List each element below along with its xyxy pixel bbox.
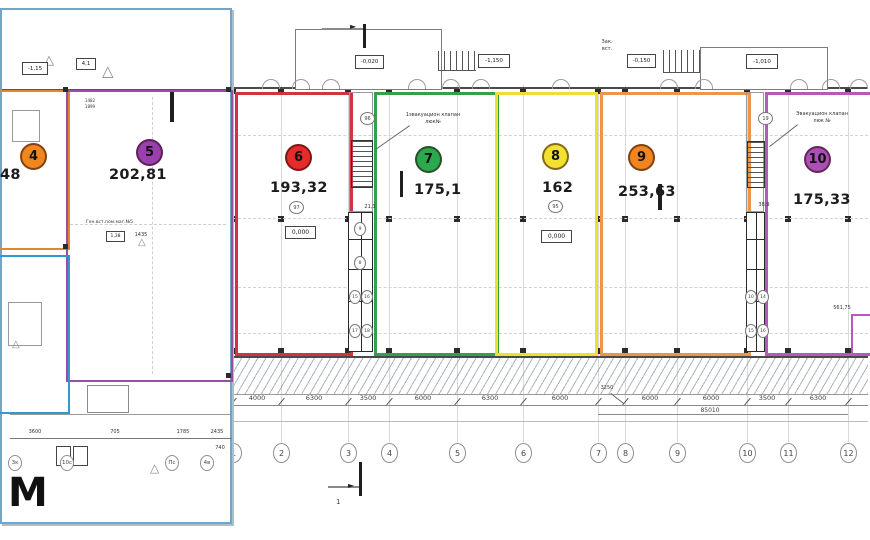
room-outline bbox=[87, 385, 129, 413]
small-label: 1,38 bbox=[106, 231, 125, 242]
unit-5-badge: 5 bbox=[136, 139, 163, 166]
room-tag: 16 bbox=[361, 290, 373, 304]
panel-axis-bubble: 4в bbox=[200, 455, 214, 471]
panel-axis-bubble: 3к bbox=[8, 455, 22, 471]
small-label: 4,1 bbox=[76, 58, 96, 70]
door-arc bbox=[822, 79, 840, 89]
unit-10-badge: 10 bbox=[804, 146, 831, 173]
grid-bubble: 5 bbox=[449, 443, 466, 463]
unit-8-area: 162 bbox=[542, 180, 573, 196]
section-number: 1 bbox=[336, 498, 340, 506]
detail-inset-panel: △ △ △ △ △ -1,15 4,1 1,38 1435 4 48 5 202… bbox=[0, 8, 232, 524]
grid-bubble: 11 bbox=[780, 443, 797, 463]
unit-9-badge: 9 bbox=[628, 144, 655, 171]
unit-7-area: 175,1 bbox=[414, 182, 461, 198]
floor-elevation: 0,000 bbox=[541, 230, 572, 243]
dimension-label: 3250 bbox=[592, 385, 622, 391]
tiny-note: 1482 bbox=[78, 98, 102, 103]
section-marker-top-line bbox=[322, 28, 363, 30]
dimension-label: 6300 bbox=[798, 394, 838, 402]
room-tag: 9 bbox=[354, 222, 366, 236]
section-arrow-icon: ► bbox=[350, 22, 356, 31]
grid-bubble: 2 bbox=[273, 443, 290, 463]
grid-bubble: 4 bbox=[381, 443, 398, 463]
unit-5-note: Ген.вст.пом.маг.№5 bbox=[62, 220, 157, 226]
small-label: -1,15 bbox=[22, 62, 48, 75]
stairs-icon bbox=[747, 141, 765, 188]
partial-unit-region bbox=[851, 314, 870, 356]
panel-line bbox=[10, 414, 230, 415]
unit-9-area: 253,63 bbox=[618, 184, 676, 200]
panel-dim: 740 bbox=[208, 445, 232, 451]
triangle-symbol-icon: △ bbox=[12, 340, 20, 350]
door-arc bbox=[262, 79, 280, 89]
door-arc bbox=[660, 79, 678, 89]
unit-5-area: 202,81 bbox=[109, 167, 167, 183]
unit-6-area: 193,32 bbox=[270, 180, 328, 196]
section-marker-bottom-line bbox=[328, 486, 359, 488]
dimension-label: 6000 bbox=[540, 394, 580, 402]
grid-bubble: 8 bbox=[617, 443, 634, 463]
column bbox=[226, 373, 231, 378]
evac-note: Эвакуацион клапан bbox=[786, 111, 858, 117]
grid-bubble: 3 bbox=[340, 443, 357, 463]
fixture-icon bbox=[73, 446, 88, 466]
evac-note: 1эвакуацион клапан bbox=[398, 112, 468, 118]
dimension-line bbox=[233, 405, 868, 406]
dimension-label: 3500 bbox=[747, 394, 787, 402]
dimension-line-total bbox=[598, 414, 848, 415]
grid-bubble: 6 bbox=[515, 443, 532, 463]
unit-8-badge: 8 bbox=[542, 143, 569, 170]
section-marker-bottom bbox=[359, 462, 362, 496]
room-tag: 14 bbox=[757, 290, 769, 304]
grid-bubble: 9 bbox=[669, 443, 686, 463]
dimension-label: 6000 bbox=[403, 394, 443, 402]
tiny-note: 1899 bbox=[78, 104, 102, 109]
unit-4-area: 48 bbox=[0, 167, 21, 183]
door-arc bbox=[442, 79, 460, 89]
column bbox=[63, 87, 68, 92]
room-tag: 96 bbox=[360, 112, 375, 125]
unit-7-badge: 7 bbox=[415, 146, 442, 173]
floorplan-canvas: 561,75 4000 6300 3500 6000 6300 6000 325… bbox=[0, 0, 870, 540]
unit-6-region[interactable] bbox=[235, 92, 353, 356]
unit-9-region[interactable] bbox=[600, 92, 751, 356]
grid-bubble: 10 bbox=[739, 443, 756, 463]
dimension-label: 6000 bbox=[630, 394, 670, 402]
top-note: вст. bbox=[594, 46, 620, 52]
panel-dim: 705 bbox=[100, 429, 130, 435]
column bbox=[226, 87, 231, 92]
column bbox=[63, 244, 68, 249]
panel-dim: 3600 bbox=[20, 429, 50, 435]
hatched-strip bbox=[233, 356, 868, 395]
section-marker-top bbox=[363, 24, 366, 48]
room-tag: 8 bbox=[354, 256, 366, 270]
dimension-label: 4000 bbox=[237, 394, 277, 402]
shaft-dimension: 38,9 bbox=[752, 202, 776, 208]
door-arc bbox=[850, 79, 868, 89]
entry-steps bbox=[663, 50, 700, 73]
room-tag: 10 bbox=[745, 290, 757, 304]
unit-4-badge: 4 bbox=[20, 143, 47, 170]
room-tag: 95 bbox=[548, 200, 563, 213]
panel-title-letter: М bbox=[8, 470, 48, 516]
wall-segment bbox=[400, 171, 403, 197]
total-dimension: 85010 bbox=[690, 407, 730, 414]
door-arc bbox=[472, 79, 490, 89]
floor-elevation: 0,000 bbox=[285, 226, 316, 239]
panel-axis-bubble: Пс bbox=[165, 455, 179, 471]
small-number: 1435 bbox=[130, 232, 152, 238]
grid-bubble: 7 bbox=[590, 443, 607, 463]
room-tag: 18 bbox=[361, 324, 373, 338]
baseline bbox=[233, 421, 868, 422]
unit-8-region[interactable] bbox=[495, 92, 598, 356]
dimension-label: 6000 bbox=[691, 394, 731, 402]
grid-bubble: 12 bbox=[840, 443, 857, 463]
elevation-label: -0,020 bbox=[355, 55, 384, 69]
elevation-label: -0,150 bbox=[627, 54, 656, 68]
entry-steps bbox=[438, 51, 476, 71]
panel-dim-line bbox=[10, 438, 232, 439]
unit-7-region[interactable] bbox=[374, 92, 499, 356]
dimension-label: 6300 bbox=[470, 394, 510, 402]
room-tag: 15 bbox=[745, 324, 757, 338]
triangle-symbol-icon: △ bbox=[138, 238, 146, 248]
top-note: Зак. bbox=[594, 39, 620, 45]
room-tag: 16 bbox=[757, 324, 769, 338]
area-note: 561,75 bbox=[822, 305, 862, 311]
stairs-icon bbox=[351, 140, 373, 188]
unit-10-area: 175,33 bbox=[793, 192, 851, 208]
door-arc bbox=[552, 79, 570, 89]
room-tag: 15 bbox=[349, 290, 361, 304]
panel-dim: 2435 bbox=[202, 429, 232, 435]
room-tag: 19 bbox=[758, 112, 773, 125]
triangle-symbol-icon: △ bbox=[102, 64, 114, 79]
unit-6-badge: 6 bbox=[285, 144, 312, 171]
room-outline bbox=[12, 110, 40, 142]
triangle-symbol-icon: △ bbox=[150, 462, 159, 474]
elevation-label: -1,150 bbox=[478, 54, 510, 68]
room-tag: 97 bbox=[289, 201, 304, 214]
dimension-label: 3500 bbox=[348, 394, 388, 402]
wall-segment bbox=[170, 92, 174, 122]
panel-axis-bubble: 10с bbox=[60, 455, 74, 471]
section-arrow-icon: ► bbox=[348, 481, 354, 490]
room-tag: 17 bbox=[349, 324, 361, 338]
panel-dim: 1785 bbox=[168, 429, 198, 435]
dimension-label: 6300 bbox=[294, 394, 334, 402]
elevation-label: -1,010 bbox=[746, 54, 778, 69]
shaft-dimension: 21,3 bbox=[358, 204, 382, 210]
